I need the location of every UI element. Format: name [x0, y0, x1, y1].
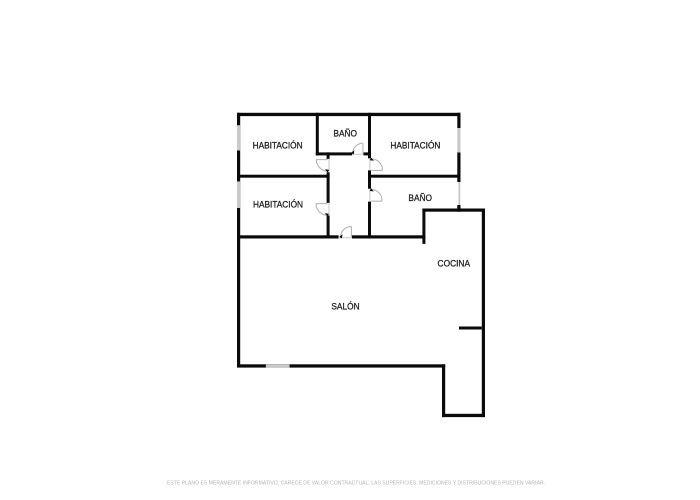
svg-text:HABITACIÓN: HABITACIÓN: [253, 140, 303, 150]
svg-text:HABITACIÓN: HABITACIÓN: [390, 140, 440, 150]
svg-text:SALÓN: SALÓN: [331, 302, 359, 312]
svg-text:BAÑO: BAÑO: [408, 193, 432, 203]
svg-text:BAÑO: BAÑO: [333, 128, 357, 138]
svg-text:ESTE PLANO ES MERAMENTE INFORM: ESTE PLANO ES MERAMENTE INFORMATIVO, CAR…: [167, 480, 545, 486]
svg-text:COCINA: COCINA: [438, 259, 471, 269]
svg-text:HABITACIÓN: HABITACIÓN: [253, 200, 303, 210]
